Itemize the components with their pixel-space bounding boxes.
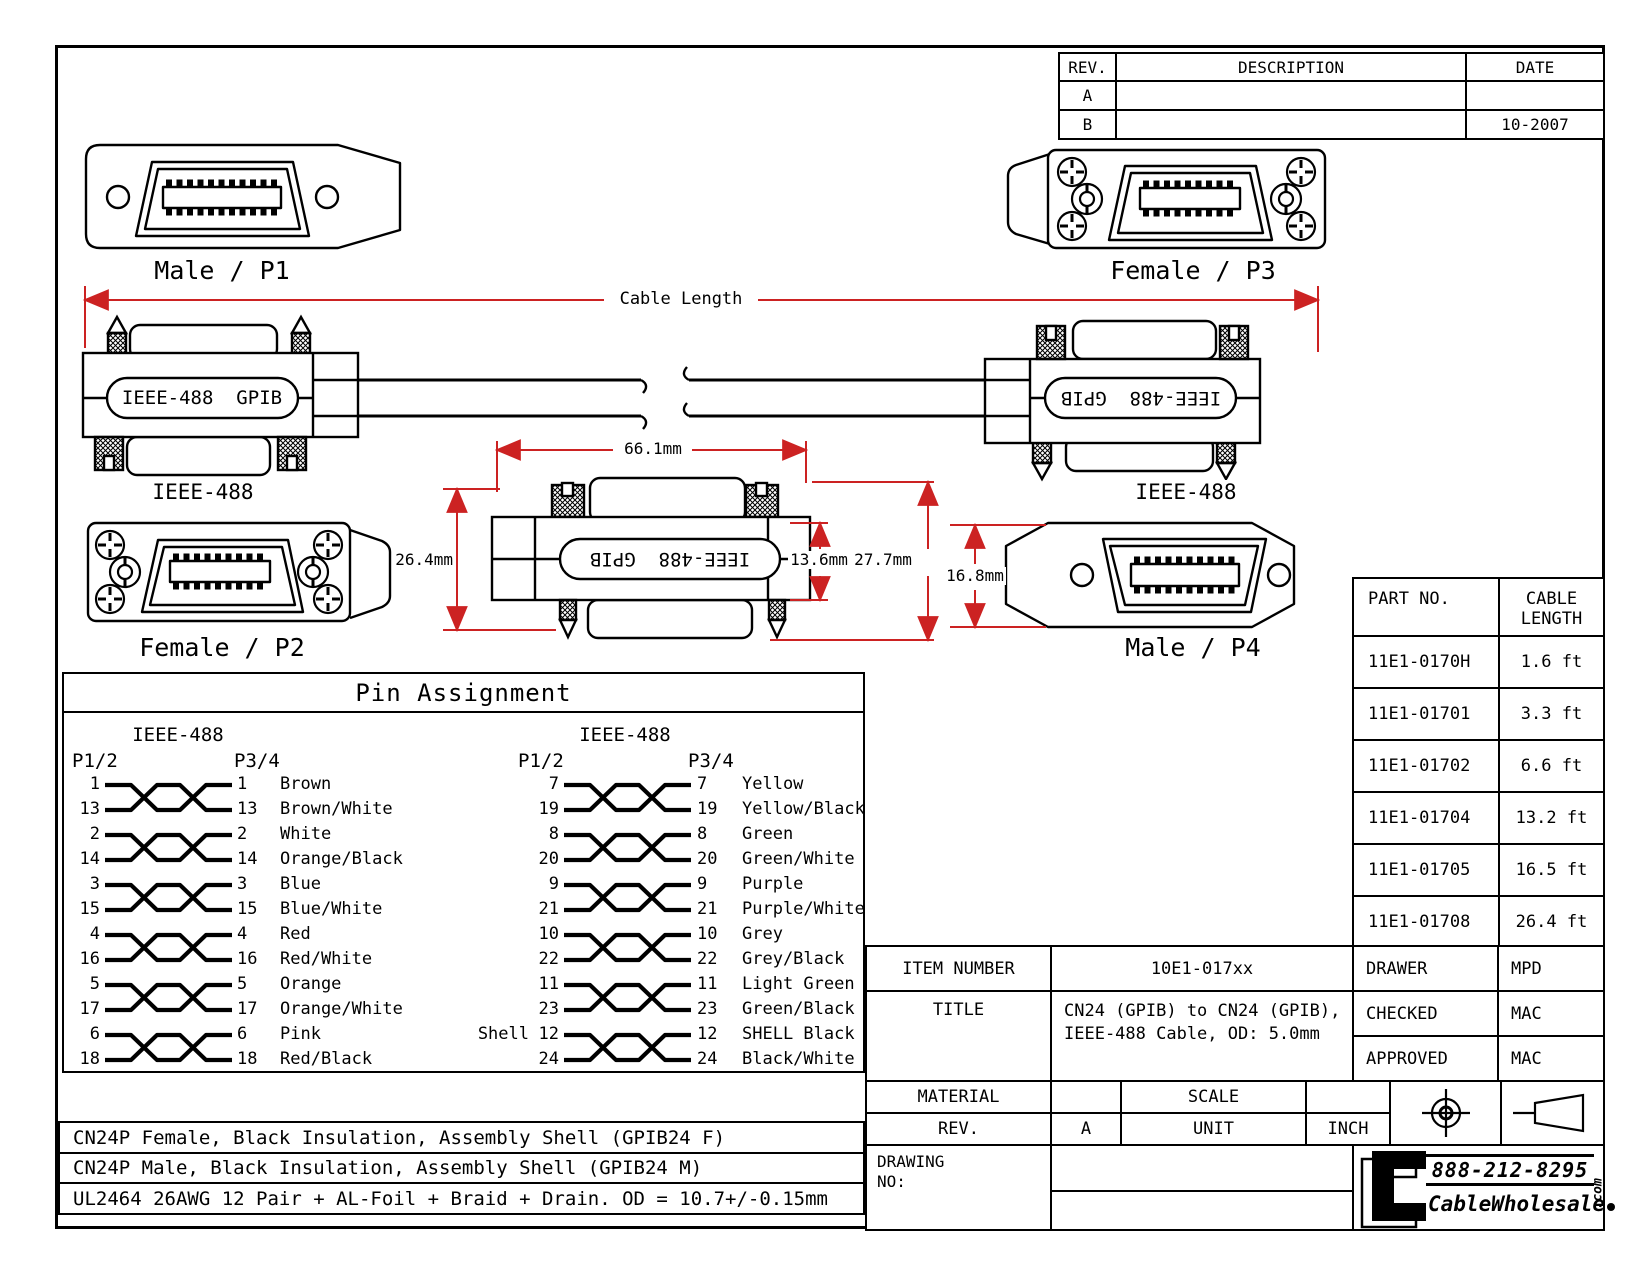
rev-value: A xyxy=(1050,1112,1122,1146)
cable-length-value: 3.3 ft xyxy=(1500,689,1603,739)
right-group-near-header: P1/2 xyxy=(518,750,564,772)
logo-tld: .com xyxy=(1591,1170,1606,1210)
pin-prefix: Shell xyxy=(472,1022,529,1047)
cable-length-dim-label: Cable Length xyxy=(606,290,756,310)
pin-num-p34-bottom: 21 xyxy=(697,897,717,922)
pin-num-p12-top: 5 xyxy=(74,972,100,997)
item-number-label: ITEM NUMBER xyxy=(865,945,1052,992)
pin-num-p34-top: 10 xyxy=(697,922,717,947)
dim-13-6: 13.6mm xyxy=(788,551,850,569)
right-cable-connector-drawing xyxy=(985,321,1260,479)
note-row: CN24P Male, Black Insulation, Assembly S… xyxy=(58,1152,865,1185)
pin-num-p34-bottom: 14 xyxy=(237,847,257,872)
pin-pairs-right: 7 19 7 Yellow 19 Yellow/Black 8 20 xyxy=(472,772,865,1072)
logo-dot xyxy=(1607,1203,1615,1211)
twisted-pair-icon xyxy=(564,972,691,1022)
pin-pair: 6 18 6 Pink 18 Red/Black xyxy=(74,1022,464,1072)
wire-color-top: Brown xyxy=(280,772,331,797)
pin-pair: 8 20 8 Green 20 Green/White xyxy=(472,822,865,872)
pin-num-p34-top: 7 xyxy=(697,772,707,797)
title-label: TITLE xyxy=(865,990,1052,1082)
revision-letter: A xyxy=(1060,82,1117,109)
pin-num-p12-top: 11 xyxy=(529,972,559,997)
revision-table-header: REV. DESCRIPTION DATE xyxy=(1060,54,1603,80)
center-shell-imprint-text: IEEE-488 GPIB xyxy=(590,548,750,570)
drawing-page: IEEE-488 GPIB xyxy=(0,0,1650,1275)
note-row: UL2464 26AWG 12 Pair + AL-Foil + Braid +… xyxy=(58,1182,865,1215)
left-cable-connector-drawing xyxy=(83,317,358,475)
pin-num-p12-bottom: 16 xyxy=(74,947,100,972)
pin-num-p12-bottom: 22 xyxy=(529,947,559,972)
twisted-pair-icon xyxy=(105,1022,232,1072)
right-group-standard: IEEE-488 xyxy=(545,724,705,746)
cable-length-value: 26.4 ft xyxy=(1500,897,1603,947)
wire-color-top: White xyxy=(280,822,331,847)
part-number-table: PART NO. CABLE LENGTH 11E1-0170H 1.6 ft … xyxy=(1352,577,1605,949)
pin-num-p12-top: 3 xyxy=(74,872,100,897)
rev-col-header: REV. xyxy=(1060,54,1117,80)
pin-num-p34-top: 5 xyxy=(237,972,247,997)
wire-color-top: Blue xyxy=(280,872,321,897)
logo-brand-row: CableWholesale xyxy=(1428,1192,1615,1216)
wire-color-bottom: Brown/White xyxy=(280,797,393,822)
pin-num-p12-top: 10 xyxy=(529,922,559,947)
pin-pair: 2 14 2 White 14 Orange/Black xyxy=(74,822,464,872)
pin-num-p12-top: 8 xyxy=(529,822,559,847)
cable-lines xyxy=(358,367,985,429)
pin-pair: 9 21 9 Purple 21 Purple/White xyxy=(472,872,865,922)
twisted-pair-icon xyxy=(564,922,691,972)
dim-66-1: 66.1mm xyxy=(617,440,689,458)
pin-num-p12-bottom: 17 xyxy=(74,997,100,1022)
wire-color-bottom: Grey/Black xyxy=(742,947,844,972)
part-table-header: PART NO. CABLE LENGTH xyxy=(1354,579,1603,635)
revision-row: A xyxy=(1060,80,1603,109)
pin-num-p34-bottom: 15 xyxy=(237,897,257,922)
revision-table: REV. DESCRIPTION DATE A B 10-2007 xyxy=(1058,52,1605,140)
checked-value: MAC xyxy=(1497,990,1605,1037)
pin-num-p12-bottom: 18 xyxy=(74,1047,100,1072)
pin-num-p12-bottom: 20 xyxy=(529,847,559,872)
drawing-no-text: DRAWING NO: xyxy=(877,1152,969,1192)
date-col-header: DATE xyxy=(1467,54,1603,80)
pin-pair: Shell 12 24 12 SHELL Black 24 Black/Whit… xyxy=(472,1022,865,1072)
p2-label: Female / P2 xyxy=(102,634,342,663)
pin-num-p12-top: 6 xyxy=(74,1022,100,1047)
revision-letter: B xyxy=(1060,111,1117,138)
scale-label: SCALE xyxy=(1120,1080,1307,1114)
wire-color-bottom: Red/White xyxy=(280,947,372,972)
cable-length-value: 16.5 ft xyxy=(1500,845,1603,895)
scale-value xyxy=(1305,1080,1391,1114)
twisted-pair-icon xyxy=(105,822,232,872)
pin-num-p34-bottom: 24 xyxy=(697,1047,717,1072)
drawing-no-label: DRAWING NO: xyxy=(865,1144,1052,1231)
part-rows: 11E1-0170H 1.6 ft 11E1-01701 3.3 ft 11E1… xyxy=(1354,635,1603,947)
p1-label: Male / P1 xyxy=(102,257,342,286)
part-row: 11E1-01702 6.6 ft xyxy=(1354,739,1603,791)
title-line-2: IEEE-488 Cable, OD: 5.0mm xyxy=(1064,1023,1352,1046)
drawer-label: DRAWER xyxy=(1352,945,1500,992)
target-symbol-icon xyxy=(1394,1084,1498,1142)
wire-color-top: Pink xyxy=(280,1022,321,1047)
title-line-1: CN24 (GPIB) to CN24 (GPIB), xyxy=(1064,1000,1352,1023)
pin-num-p12-top: 2 xyxy=(74,822,100,847)
dim-26-4: 26.4mm xyxy=(393,551,453,569)
cable-length-value: 6.6 ft xyxy=(1500,741,1603,791)
pin-assignment-title: Pin Assignment xyxy=(64,674,863,713)
logo-phone-number: 888-212-8295 xyxy=(1426,1158,1594,1182)
male-p1-drawing xyxy=(86,145,400,248)
part-number: 11E1-01705 xyxy=(1354,845,1500,895)
pin-num-p12-top: 4 xyxy=(74,922,100,947)
cable-length-header: CABLE LENGTH xyxy=(1500,579,1603,635)
pin-num-p12-top: 7 xyxy=(529,772,559,797)
pin-assignment-table: Pin Assignment IEEE-488 P1/2 P3/4 IEEE-4… xyxy=(62,672,865,1073)
wire-color-bottom: Purple/White xyxy=(742,897,865,922)
pin-num-p34-bottom: 18 xyxy=(237,1047,257,1072)
left-group-standard: IEEE-488 xyxy=(98,724,258,746)
approved-label: APPROVED xyxy=(1352,1035,1500,1082)
pin-pair: 1 13 1 Brown 13 Brown/White xyxy=(74,772,464,822)
wire-color-bottom: Orange/White xyxy=(280,997,403,1022)
wire-color-bottom: Orange/Black xyxy=(280,847,403,872)
pin-num-p12-top: 12 xyxy=(529,1022,559,1047)
pin-num-p34-top: 11 xyxy=(697,972,717,997)
pin-num-p34-bottom: 23 xyxy=(697,997,717,1022)
drawing-no-value xyxy=(1050,1144,1354,1192)
wire-color-bottom: Green/White xyxy=(742,847,855,872)
wire-color-bottom: Green/Black xyxy=(742,997,855,1022)
pin-num-p34-top: 6 xyxy=(237,1022,247,1047)
pin-num-p12-top: 9 xyxy=(529,872,559,897)
pin-num-p34-top: 1 xyxy=(237,772,247,797)
unit-label: UNIT xyxy=(1120,1112,1307,1146)
pin-num-p12-bottom: 21 xyxy=(529,897,559,922)
part-number: 11E1-01704 xyxy=(1354,793,1500,843)
right-ieee488-label: IEEE-488 xyxy=(1086,480,1286,504)
right-group-far-header: P3/4 xyxy=(688,750,734,772)
note-text: UL2464 26AWG 12 Pair + AL-Foil + Braid +… xyxy=(73,1188,828,1210)
logo-brand-name: CableWholesale xyxy=(1428,1192,1605,1216)
part-number: 11E1-01702 xyxy=(1354,741,1500,791)
p4-label: Male / P4 xyxy=(1063,634,1323,663)
pin-num-p34-bottom: 13 xyxy=(237,797,257,822)
pin-num-p34-top: 3 xyxy=(237,872,247,897)
pin-num-p34-top: 9 xyxy=(697,872,707,897)
pin-num-p12-bottom: 13 xyxy=(74,797,100,822)
pin-pair: 11 23 11 Light Green 23 Green/Black xyxy=(472,972,865,1022)
projection-cone-cell xyxy=(1500,1080,1605,1146)
twisted-pair-icon xyxy=(564,822,691,872)
pin-num-p12-bottom: 19 xyxy=(529,797,559,822)
wire-color-top: SHELL Black xyxy=(742,1022,855,1047)
pin-num-p12-bottom: 23 xyxy=(529,997,559,1022)
part-row: 11E1-01701 3.3 ft xyxy=(1354,687,1603,739)
twisted-pair-icon xyxy=(105,922,232,972)
wire-color-top: Light Green xyxy=(742,972,855,997)
wire-color-bottom: Red/Black xyxy=(280,1047,372,1072)
wire-color-bottom: Black/White xyxy=(742,1047,855,1072)
pin-num-p34-top: 8 xyxy=(697,822,707,847)
wire-color-top: Yellow xyxy=(742,772,803,797)
drawer-value: MPD xyxy=(1497,945,1605,992)
description-col-header: DESCRIPTION xyxy=(1117,54,1467,80)
pin-num-p34-bottom: 20 xyxy=(697,847,717,872)
twisted-pair-icon xyxy=(564,772,691,822)
pin-num-p12-bottom: 14 xyxy=(74,847,100,872)
pin-num-p12-bottom: 24 xyxy=(529,1047,559,1072)
pin-pair: 5 17 5 Orange 17 Orange/White xyxy=(74,972,464,1022)
note-text: CN24P Female, Black Insulation, Assembly… xyxy=(73,1127,725,1149)
note-row: CN24P Female, Black Insulation, Assembly… xyxy=(58,1121,865,1154)
pin-num-p34-bottom: 22 xyxy=(697,947,717,972)
twisted-pair-icon xyxy=(564,872,691,922)
part-number: 11E1-0170H xyxy=(1354,637,1500,687)
dim-27-7: 27.7mm xyxy=(852,551,914,569)
part-row: 11E1-0170H 1.6 ft xyxy=(1354,635,1603,687)
pin-num-p34-top: 12 xyxy=(697,1022,717,1047)
twisted-pair-icon xyxy=(564,1022,691,1072)
revision-row: B 10-2007 xyxy=(1060,109,1603,138)
pin-num-p34-top: 4 xyxy=(237,922,247,947)
logo-cell: 888-212-8295 CableWholesale .com xyxy=(1352,1144,1605,1231)
cone-projection-icon xyxy=(1505,1084,1601,1142)
logo-phone-block: 888-212-8295 xyxy=(1426,1154,1594,1186)
pin-pairs-left: 1 13 1 Brown 13 Brown/White 2 14 xyxy=(74,772,464,1072)
note-text: CN24P Male, Black Insulation, Assembly S… xyxy=(73,1157,702,1179)
revision-date xyxy=(1467,82,1603,109)
twisted-pair-icon xyxy=(105,872,232,922)
female-p3-drawing xyxy=(1008,150,1325,248)
pin-num-p34-top: 2 xyxy=(237,822,247,847)
wire-color-bottom: Yellow/Black xyxy=(742,797,865,822)
pin-pair: 3 15 3 Blue 15 Blue/White xyxy=(74,872,464,922)
male-p4-drawing xyxy=(1006,523,1294,627)
wire-color-top: Grey xyxy=(742,922,783,947)
part-row: 11E1-01708 26.4 ft xyxy=(1354,895,1603,947)
material-label: MATERIAL xyxy=(865,1080,1052,1114)
female-p2-drawing xyxy=(88,523,390,621)
title-value: CN24 (GPIB) to CN24 (GPIB), IEEE-488 Cab… xyxy=(1050,990,1354,1082)
part-number: 11E1-01701 xyxy=(1354,689,1500,739)
material-value xyxy=(1050,1080,1122,1114)
unit-value: INCH xyxy=(1305,1112,1391,1146)
revision-description xyxy=(1117,111,1467,138)
part-number: 11E1-01708 xyxy=(1354,897,1500,947)
dim-16-8: 16.8mm xyxy=(944,567,1006,585)
approved-value: MAC xyxy=(1497,1035,1605,1082)
pin-num-p12-bottom: 15 xyxy=(74,897,100,922)
wire-color-top: Green xyxy=(742,822,793,847)
projection-target-cell xyxy=(1389,1080,1502,1146)
left-group-far-header: P3/4 xyxy=(234,750,280,772)
revision-date: 10-2007 xyxy=(1467,111,1603,138)
pin-num-p12-top: 1 xyxy=(74,772,100,797)
material-notes: CN24P Female, Black Insulation, Assembly… xyxy=(58,1121,865,1215)
pin-num-p34-bottom: 16 xyxy=(237,947,257,972)
wire-color-bottom: Blue/White xyxy=(280,897,382,922)
p3-label: Female / P3 xyxy=(1063,257,1323,286)
left-group-near-header: P1/2 xyxy=(72,750,118,772)
center-connector-drawing: IEEE-488 GPIB xyxy=(492,478,810,638)
wire-color-top: Red xyxy=(280,922,311,947)
revision-rows: A B 10-2007 xyxy=(1060,80,1603,138)
wire-color-top: Purple xyxy=(742,872,803,897)
left-ieee488-label: IEEE-488 xyxy=(103,480,303,504)
checked-label: CHECKED xyxy=(1352,990,1500,1037)
revision-description xyxy=(1117,82,1467,109)
pin-pair: 4 16 4 Red 16 Red/White xyxy=(74,922,464,972)
part-row: 11E1-01704 13.2 ft xyxy=(1354,791,1603,843)
wire-color-top: Orange xyxy=(280,972,341,997)
cable-length-value: 1.6 ft xyxy=(1500,637,1603,687)
drawing-no-value-2 xyxy=(1050,1190,1354,1231)
pin-pair: 7 19 7 Yellow 19 Yellow/Black xyxy=(472,772,865,822)
item-number-value: 10E1-017xx xyxy=(1050,945,1354,992)
rev-label: REV. xyxy=(865,1112,1052,1146)
twisted-pair-icon xyxy=(105,972,232,1022)
twisted-pair-icon xyxy=(105,772,232,822)
pin-num-p34-bottom: 19 xyxy=(697,797,717,822)
cable-length-value: 13.2 ft xyxy=(1500,793,1603,843)
part-row: 11E1-01705 16.5 ft xyxy=(1354,843,1603,895)
pin-pair: 10 22 10 Grey 22 Grey/Black xyxy=(472,922,865,972)
part-no-header: PART NO. xyxy=(1354,579,1500,635)
pin-num-p34-bottom: 17 xyxy=(237,997,257,1022)
